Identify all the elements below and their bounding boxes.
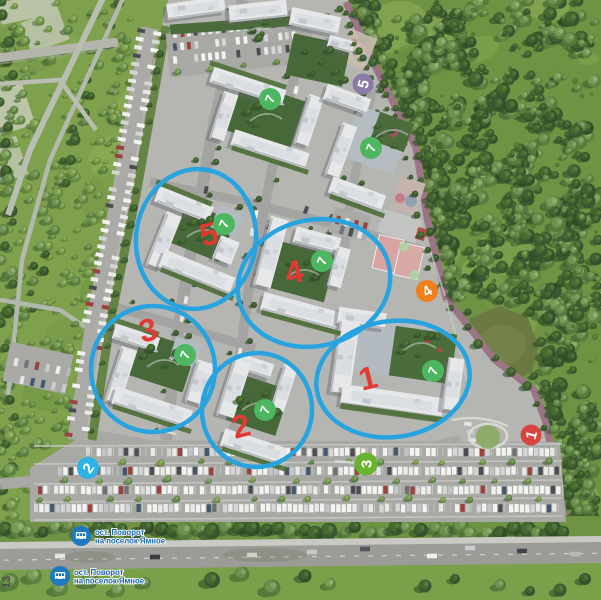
svg-text:на поселок Ямное: на поселок Ямное (74, 577, 145, 586)
svg-text:на поселок Ямное: на поселок Ямное (95, 537, 166, 546)
svg-text:3: 3 (358, 460, 375, 468)
svg-text:13: 13 (1, 576, 13, 588)
